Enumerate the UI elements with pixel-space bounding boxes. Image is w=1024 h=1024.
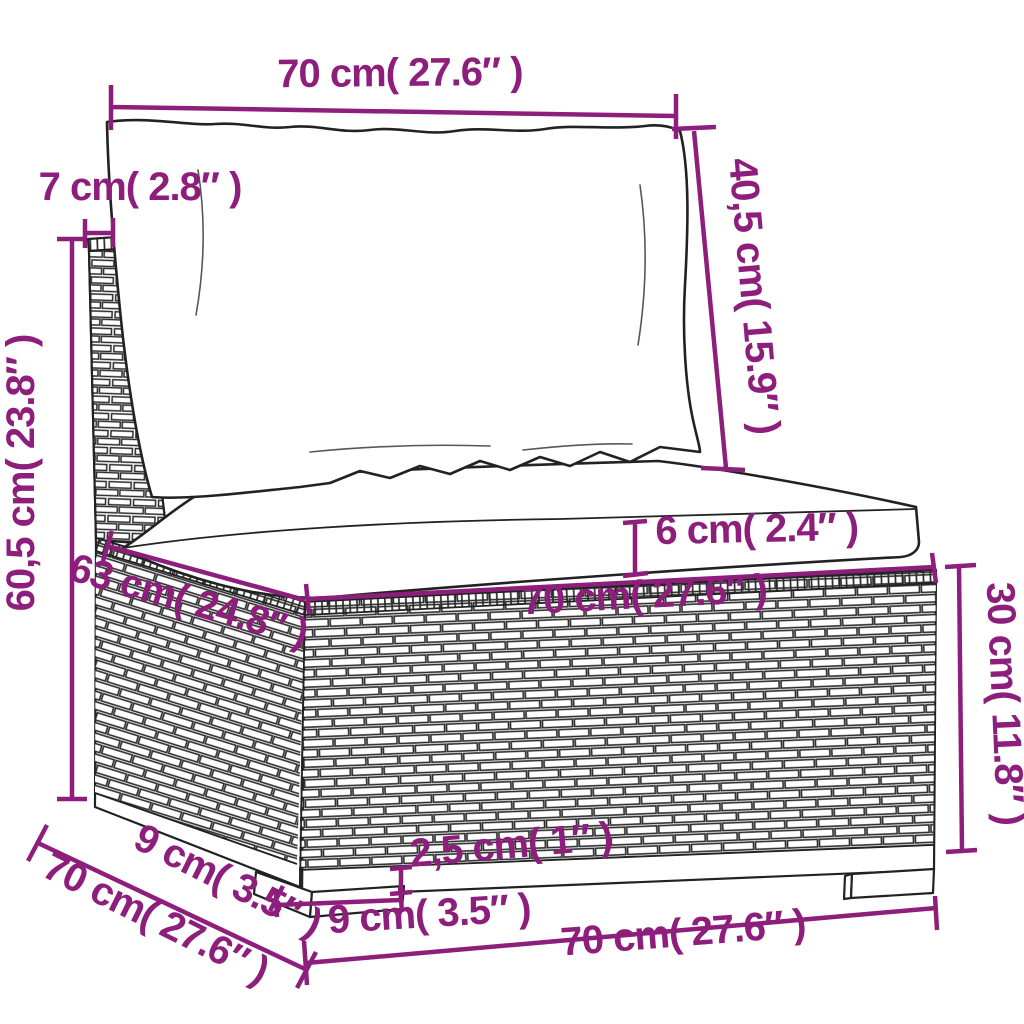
dimension-diagram: 70 cm( 27.6″ ) 40,5 cm( 15.9″ ) 7 cm( 2.…: [0, 0, 1024, 1024]
dim-total-height: 60,5 cm( 23.8″ ): [0, 239, 87, 799]
dim-label-overall-width: 70 cm( 27.6″ ): [559, 901, 807, 964]
dim-label-total-height: 60,5 cm( 23.8″ ): [0, 335, 43, 612]
leg-front-right: [844, 869, 934, 899]
dim-label-back-cushion-height: 40,5 cm( 15.9″ ): [720, 156, 788, 435]
dim-label-back-cushion-width: 70 cm( 27.6″ ): [277, 50, 523, 97]
diagram-canvas: 70 cm( 27.6″ ) 40,5 cm( 15.9″ ) 7 cm( 2.…: [0, 0, 1024, 1024]
dim-label-backrest-thickness: 7 cm( 2.8″ ): [39, 165, 242, 209]
dim-label-base-height: 30 cm( 11.8″ ): [978, 581, 1024, 826]
dim-label-seat-cushion-thickness: 6 cm( 2.4″ ): [655, 505, 859, 553]
base-front-face: [299, 570, 936, 896]
dim-base-height: 30 cm( 11.8″ ): [945, 565, 1024, 852]
